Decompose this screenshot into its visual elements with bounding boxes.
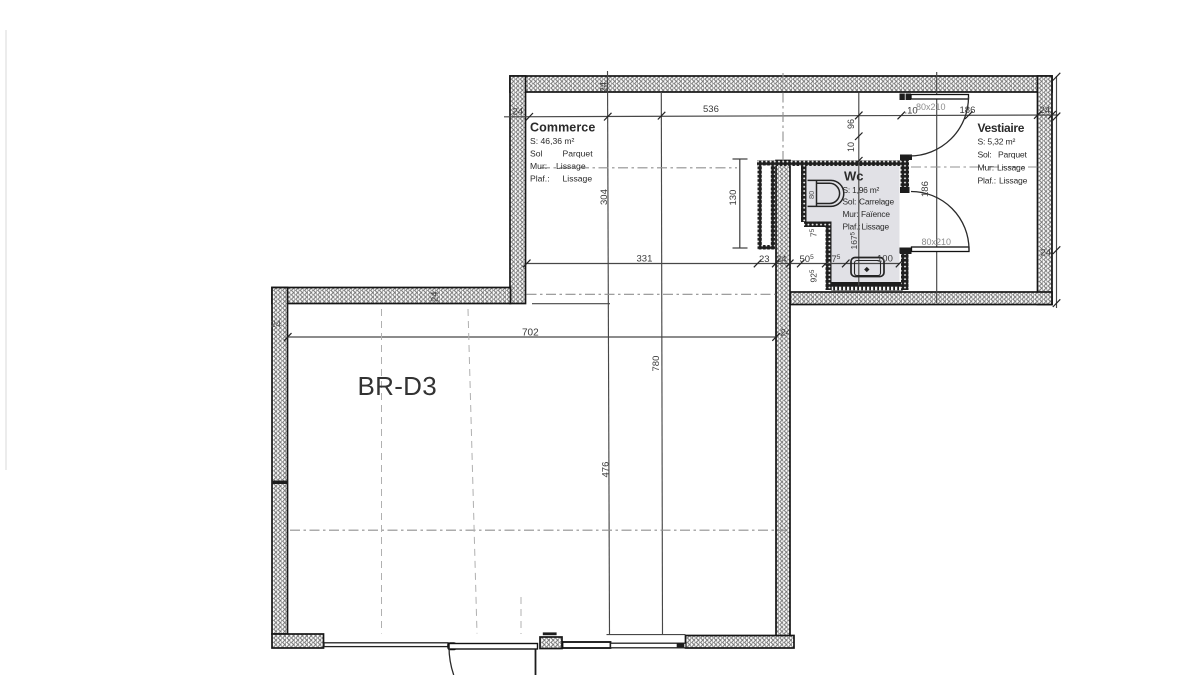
- svg-text:Lissage: Lissage: [862, 221, 890, 231]
- svg-text:BR-D3: BR-D3: [358, 371, 438, 401]
- svg-text:S: 1,96 m²: S: 1,96 m²: [843, 185, 880, 195]
- svg-text:24: 24: [430, 291, 441, 302]
- svg-text:331: 331: [637, 254, 653, 265]
- svg-text:96: 96: [846, 119, 856, 129]
- svg-text:Lissage: Lissage: [563, 173, 593, 183]
- svg-text:24: 24: [271, 319, 282, 330]
- svg-text:Faïence: Faïence: [861, 209, 890, 219]
- svg-text:Mur:: Mur:: [978, 162, 994, 172]
- svg-text:Parquet: Parquet: [998, 150, 1028, 160]
- svg-text:Lissage: Lissage: [999, 175, 1028, 185]
- svg-text:23: 23: [759, 254, 770, 265]
- svg-text:Plaf.:: Plaf.:: [843, 221, 861, 231]
- svg-text:536: 536: [703, 104, 719, 115]
- svg-text:Plaf.:: Plaf.:: [530, 173, 550, 183]
- svg-text:186: 186: [920, 181, 931, 197]
- svg-text:Parquet: Parquet: [563, 148, 594, 158]
- svg-text:24: 24: [781, 328, 792, 339]
- svg-text:476: 476: [601, 462, 612, 478]
- svg-text:Mur:: Mur:: [843, 209, 859, 219]
- svg-text:24: 24: [1040, 105, 1051, 116]
- svg-text:Commerce: Commerce: [530, 121, 595, 135]
- svg-text:Vestiaire: Vestiaire: [978, 121, 1025, 135]
- svg-text:Lissage: Lissage: [556, 161, 586, 171]
- svg-text:75: 75: [809, 228, 819, 237]
- svg-text:S: 46,36 m²: S: 46,36 m²: [530, 136, 575, 146]
- svg-text:80x210: 80x210: [922, 237, 952, 247]
- svg-text:24: 24: [1041, 248, 1052, 259]
- svg-text:780: 780: [651, 356, 662, 372]
- svg-text:100: 100: [877, 254, 893, 265]
- svg-text:Sol:: Sol:: [978, 150, 992, 160]
- svg-text:Carrelage: Carrelage: [859, 197, 895, 207]
- svg-text:Sol:: Sol:: [843, 197, 857, 207]
- svg-text:925: 925: [809, 269, 819, 282]
- svg-text:Plaf.:: Plaf.:: [978, 175, 996, 185]
- svg-text:24: 24: [599, 82, 610, 93]
- svg-text:130: 130: [728, 190, 739, 206]
- svg-text:24: 24: [776, 254, 787, 265]
- svg-text:S: 5,32 m²: S: 5,32 m²: [978, 137, 1016, 147]
- svg-text:702: 702: [522, 328, 539, 339]
- svg-text:10: 10: [846, 142, 856, 152]
- svg-text:Wc: Wc: [844, 169, 864, 184]
- svg-text:186: 186: [960, 105, 976, 116]
- svg-text:304: 304: [599, 189, 610, 205]
- svg-text:Mur:: Mur:: [530, 161, 547, 171]
- svg-text:Sol: Sol: [530, 148, 543, 158]
- svg-text:24: 24: [513, 107, 524, 118]
- svg-text:80: 80: [807, 191, 816, 199]
- svg-text:Lissage: Lissage: [997, 162, 1026, 172]
- svg-text:80x210: 80x210: [916, 102, 946, 112]
